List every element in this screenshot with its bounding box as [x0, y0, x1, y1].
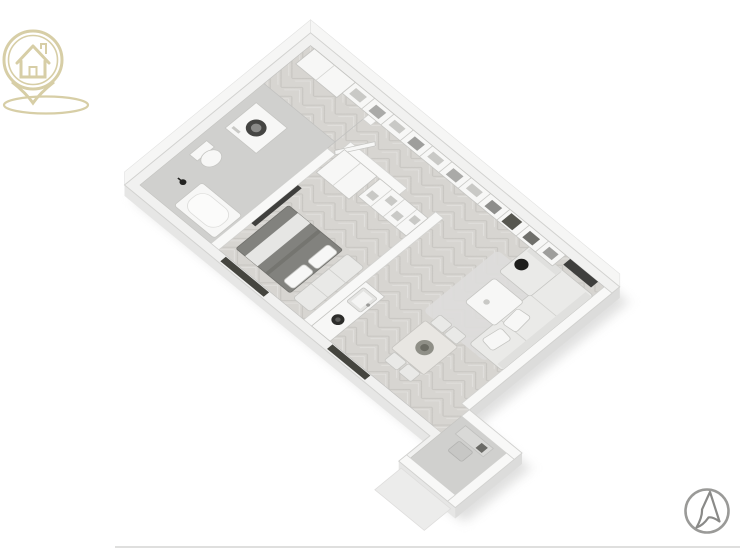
page [0, 0, 740, 550]
floor-plan [64, 33, 672, 532]
cursor-badge[interactable] [686, 490, 729, 533]
scene [0, 0, 740, 550]
bottom-divider-line [115, 546, 740, 548]
logo-pin-circle [4, 31, 62, 89]
brand-logo[interactable] [4, 31, 88, 114]
house-icon [17, 44, 49, 77]
logo-base-ellipse [4, 97, 88, 114]
